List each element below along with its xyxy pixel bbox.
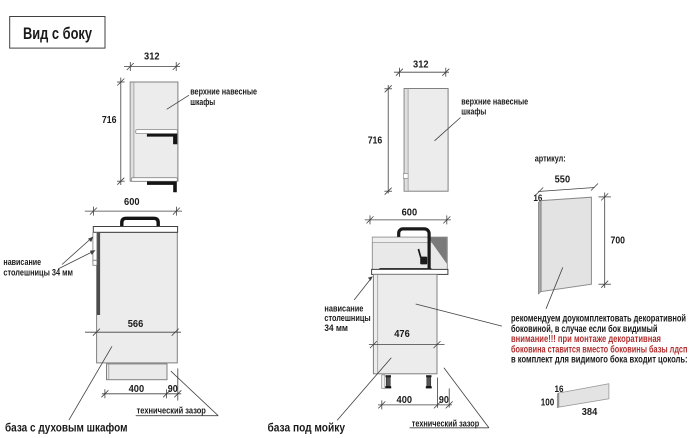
svg-text:16: 16 xyxy=(555,384,564,394)
svg-text:550: 550 xyxy=(555,175,571,186)
svg-text:боковиной, в случае если бок в: боковиной, в случае если бок видимый xyxy=(511,323,658,335)
svg-text:34 мм: 34 мм xyxy=(324,323,348,334)
svg-text:Вид с боку: Вид с боку xyxy=(23,25,93,43)
svg-text:шкафы: шкафы xyxy=(190,97,215,108)
svg-text:шкафы: шкафы xyxy=(461,107,486,118)
svg-text:в комплект для видимого бока в: в комплект для видимого бока входит цоко… xyxy=(511,354,688,366)
svg-text:700: 700 xyxy=(611,236,626,247)
svg-text:боковина ставится вместо боков: боковина ставится вместо боковины базы л… xyxy=(511,343,687,355)
svg-text:90: 90 xyxy=(168,384,178,395)
svg-text:400: 400 xyxy=(397,395,413,406)
svg-text:база с духовым шкафом: база с духовым шкафом xyxy=(5,420,128,434)
svg-text:312: 312 xyxy=(413,59,429,70)
svg-text:технический зазор: технический зазор xyxy=(137,405,206,416)
svg-text:артикул:: артикул: xyxy=(535,153,566,164)
svg-text:600: 600 xyxy=(402,207,418,218)
svg-text:столешницы 34 мм: столешницы 34 мм xyxy=(3,268,73,279)
svg-text:716: 716 xyxy=(368,136,383,147)
svg-text:90: 90 xyxy=(439,395,449,406)
svg-text:476: 476 xyxy=(394,329,410,340)
svg-text:312: 312 xyxy=(144,52,160,63)
svg-text:716: 716 xyxy=(102,115,117,126)
svg-text:566: 566 xyxy=(128,319,144,330)
svg-text:384: 384 xyxy=(582,407,598,418)
svg-text:600: 600 xyxy=(124,197,140,208)
svg-text:100: 100 xyxy=(541,398,555,409)
svg-text:400: 400 xyxy=(129,384,145,395)
svg-text:база под мойку: база под мойку xyxy=(268,420,346,434)
